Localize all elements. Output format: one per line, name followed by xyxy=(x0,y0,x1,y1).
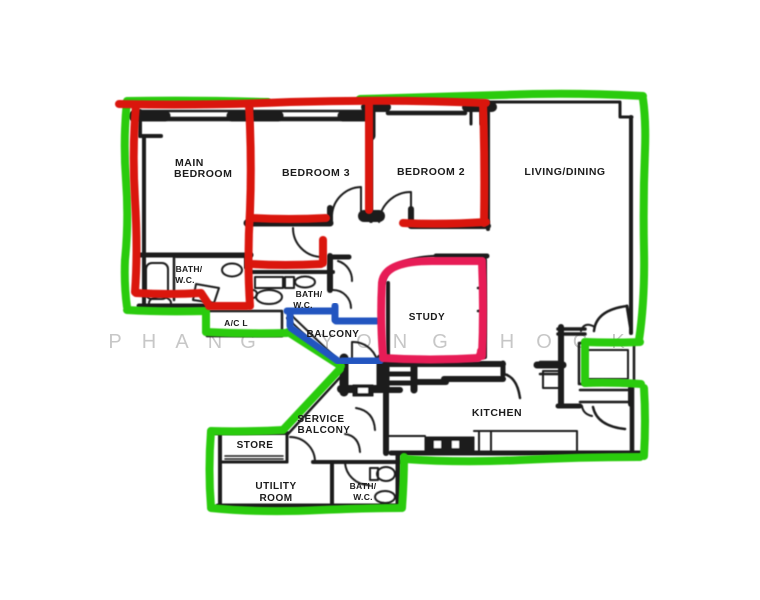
svg-text:H: H xyxy=(142,331,156,353)
svg-text:N: N xyxy=(393,331,407,353)
svg-text:W.C.: W.C. xyxy=(293,300,313,310)
svg-text:BEDROOM: BEDROOM xyxy=(174,168,232,180)
svg-text:ROOM: ROOM xyxy=(259,493,292,504)
svg-text:LIVING/DINING: LIVING/DINING xyxy=(524,166,605,178)
svg-text:G: G xyxy=(432,331,448,353)
svg-text:BATH/: BATH/ xyxy=(350,481,377,491)
svg-text:O: O xyxy=(536,331,552,353)
svg-text:BEDROOM 3: BEDROOM 3 xyxy=(282,167,350,179)
svg-text:BATH/: BATH/ xyxy=(296,289,323,299)
svg-text:UTILITY: UTILITY xyxy=(255,481,296,492)
svg-text:H: H xyxy=(500,331,514,353)
svg-text:STORE: STORE xyxy=(237,440,274,451)
svg-text:BALCONY: BALCONY xyxy=(307,329,360,340)
svg-text:A/C L: A/C L xyxy=(224,318,248,328)
svg-text:W.C.: W.C. xyxy=(175,275,195,285)
svg-text:BATH/: BATH/ xyxy=(176,264,203,274)
svg-text:BEDROOM 2: BEDROOM 2 xyxy=(397,166,465,178)
svg-text:SERVICE: SERVICE xyxy=(297,414,344,425)
svg-text:W.C.: W.C. xyxy=(353,492,373,502)
svg-text:P: P xyxy=(108,331,121,353)
svg-text:KITCHEN: KITCHEN xyxy=(472,407,522,419)
svg-text:STUDY: STUDY xyxy=(409,312,445,323)
svg-text:A: A xyxy=(175,331,189,353)
svg-text:BALCONY: BALCONY xyxy=(298,425,351,436)
